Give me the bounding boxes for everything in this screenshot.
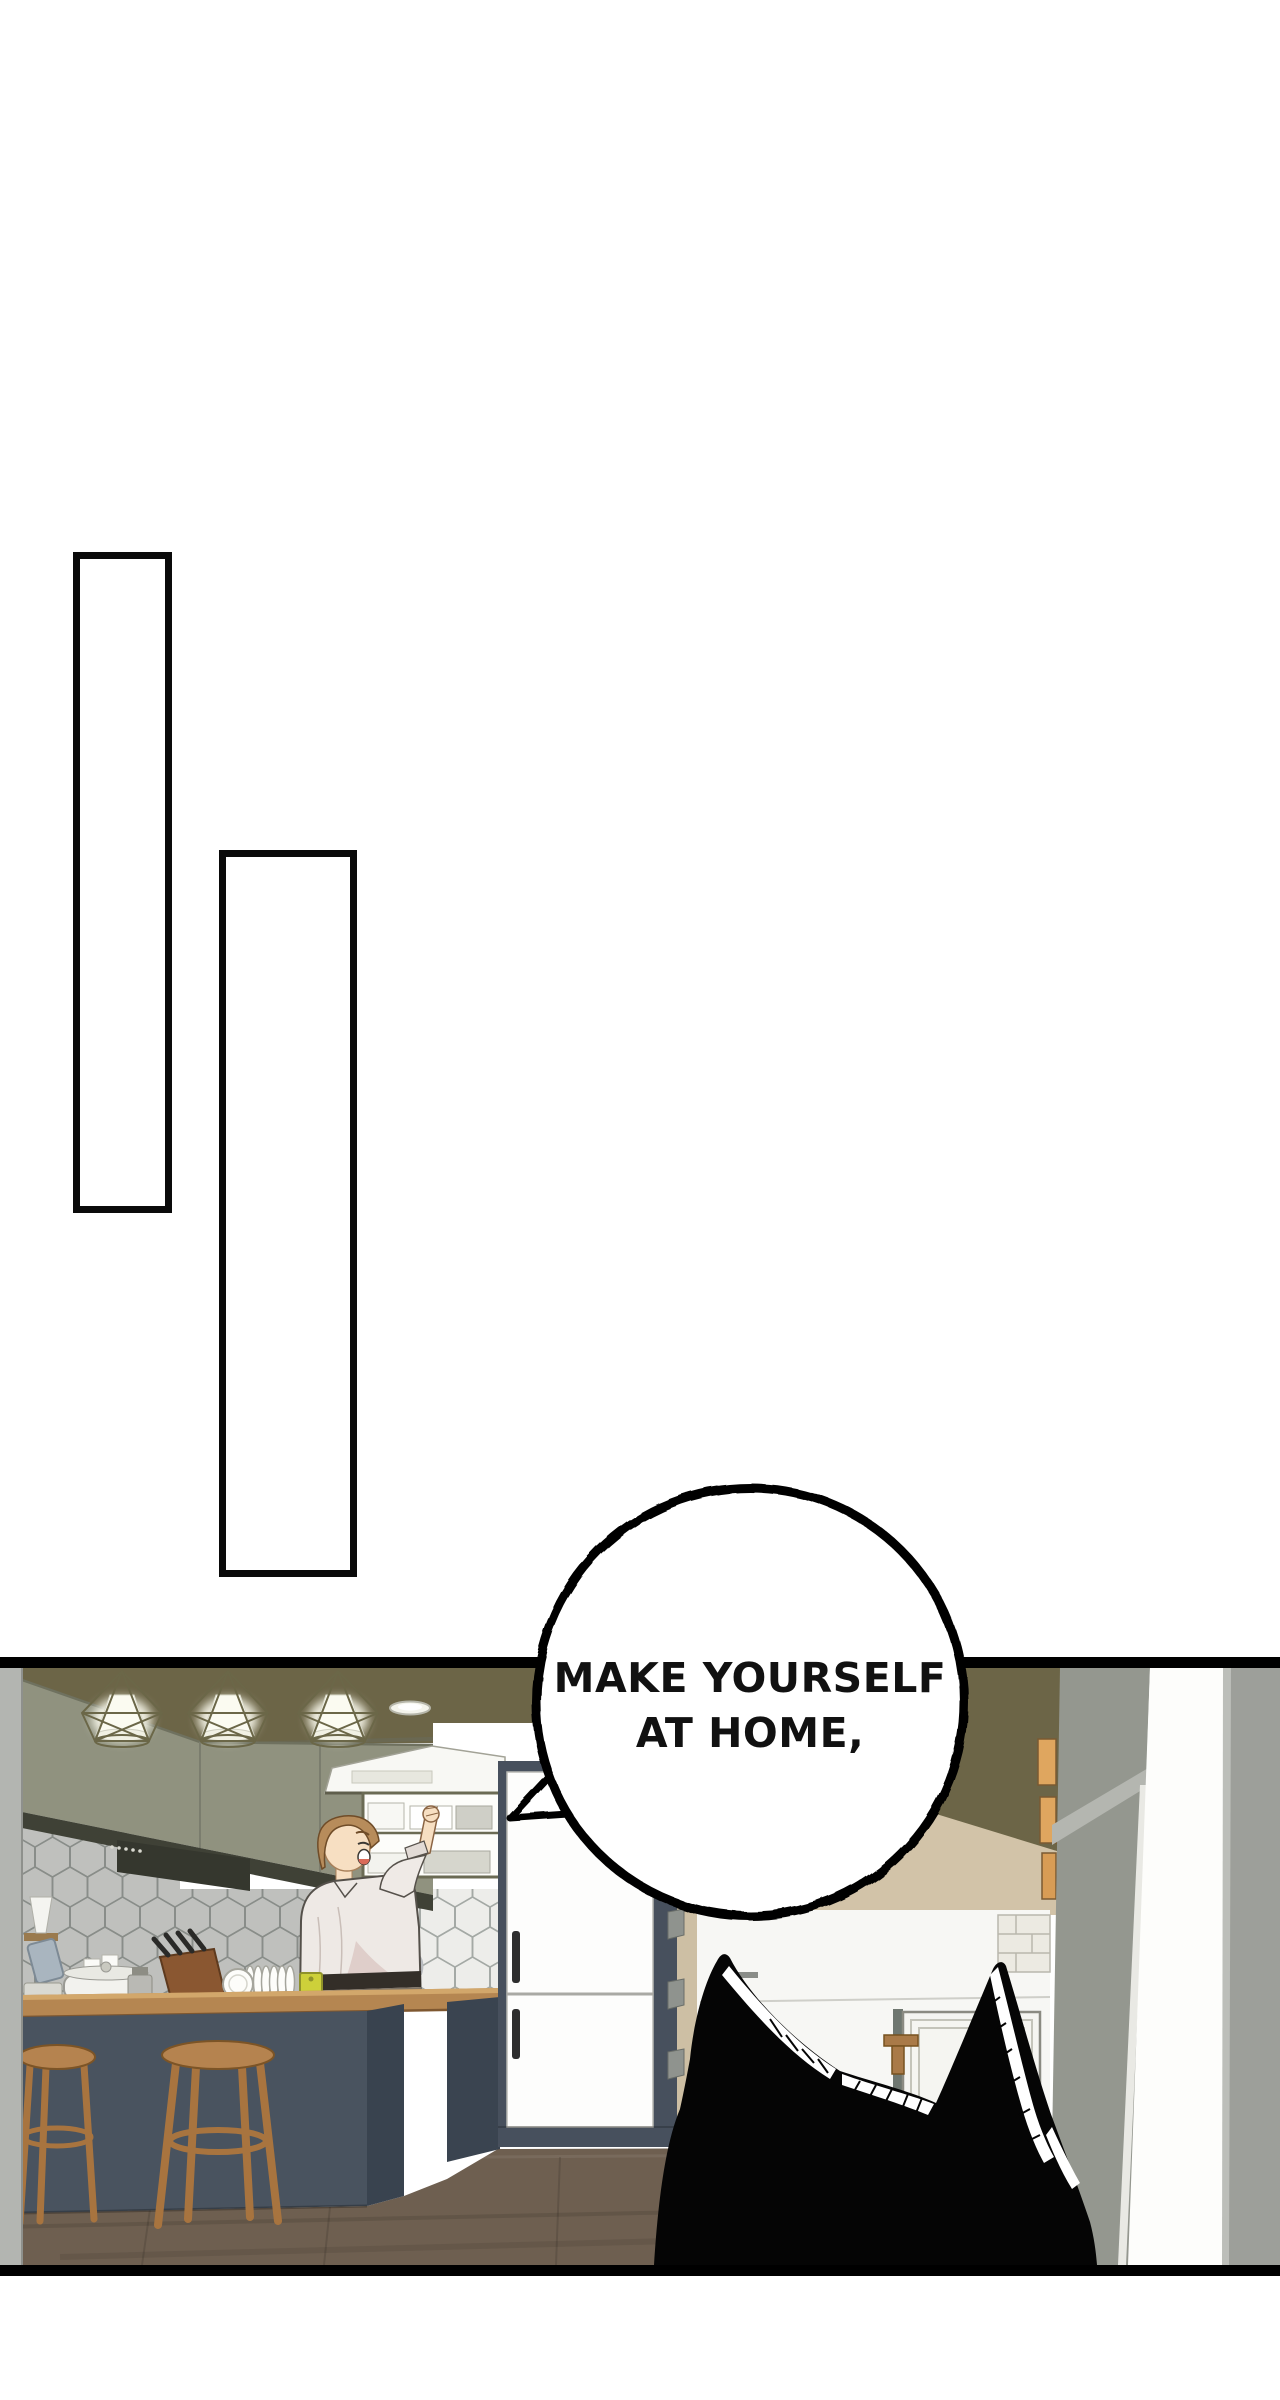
webtoon-page: MAKE YOURSELF AT HOME,: [0, 0, 1280, 2400]
island-side: [367, 2004, 404, 2206]
empty-panel-1: [73, 552, 172, 1213]
speech-bubble: MAKE YOURSELF AT HOME,: [470, 1440, 1010, 1960]
cat-tree-bar: [884, 2035, 918, 2046]
ceiling-light: [390, 1702, 430, 1715]
panel-border-bottom: [0, 2265, 1280, 2276]
right-foreground-wall: [1223, 1668, 1280, 2265]
bubble-body: [536, 1488, 964, 1916]
bubble-text-line2: AT HOME,: [636, 1709, 864, 1757]
fridge-handle: [512, 2009, 520, 2059]
lid-knob: [101, 1962, 111, 1972]
empty-panel-2: [219, 850, 357, 1577]
left-wall-edge: [0, 1668, 22, 2265]
cat-tree-post: [892, 2046, 904, 2074]
bubble-text-line1: MAKE YOURSELF: [554, 1654, 947, 1702]
right-side-walls: [1050, 1668, 1280, 2265]
